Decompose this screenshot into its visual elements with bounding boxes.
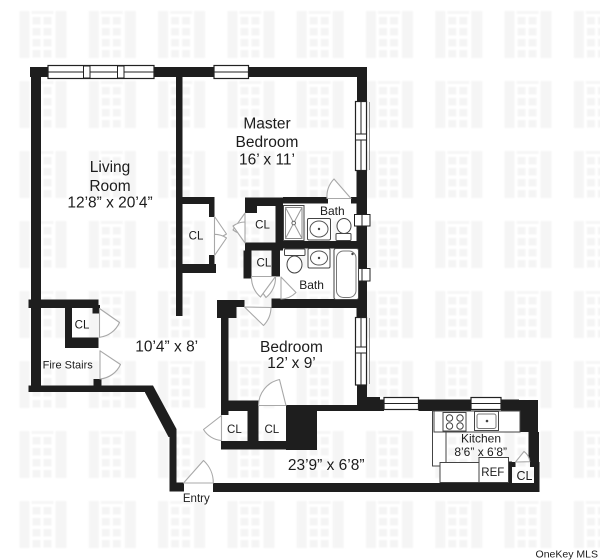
svg-text:CL: CL [227, 424, 242, 436]
svg-text:Room: Room [89, 178, 130, 195]
svg-text:23’9” x 6’8”: 23’9” x 6’8” [288, 457, 365, 474]
svg-text:Entry: Entry [183, 493, 210, 505]
svg-text:Living: Living [90, 159, 131, 176]
svg-text:OneKey MLS: OneKey MLS [536, 549, 598, 560]
svg-text:CL: CL [189, 231, 204, 243]
svg-text:CL: CL [255, 220, 270, 232]
svg-text:16’ x 11’: 16’ x 11’ [239, 151, 295, 168]
svg-text:Bedroom: Bedroom [236, 134, 299, 151]
svg-text:Fire Stairs: Fire Stairs [43, 360, 94, 372]
svg-text:CL: CL [257, 258, 272, 270]
svg-text:Kitchen: Kitchen [461, 432, 501, 446]
svg-text:Bedroom: Bedroom [260, 339, 323, 356]
svg-text:CL: CL [75, 320, 90, 332]
svg-text:12’ x 9’: 12’ x 9’ [267, 355, 316, 372]
svg-text:12’8” x 20’4”: 12’8” x 20’4” [67, 195, 152, 212]
svg-text:Master: Master [243, 115, 290, 132]
svg-text:REF: REF [481, 467, 504, 479]
svg-text:Bath: Bath [299, 278, 324, 292]
svg-text:Bath: Bath [320, 204, 345, 218]
svg-text:10’4” x 8’: 10’4” x 8’ [135, 339, 198, 356]
svg-text:CL: CL [264, 424, 279, 436]
svg-text:8’6” x 6’8”: 8’6” x 6’8” [454, 445, 507, 459]
svg-text:CL: CL [517, 469, 533, 483]
